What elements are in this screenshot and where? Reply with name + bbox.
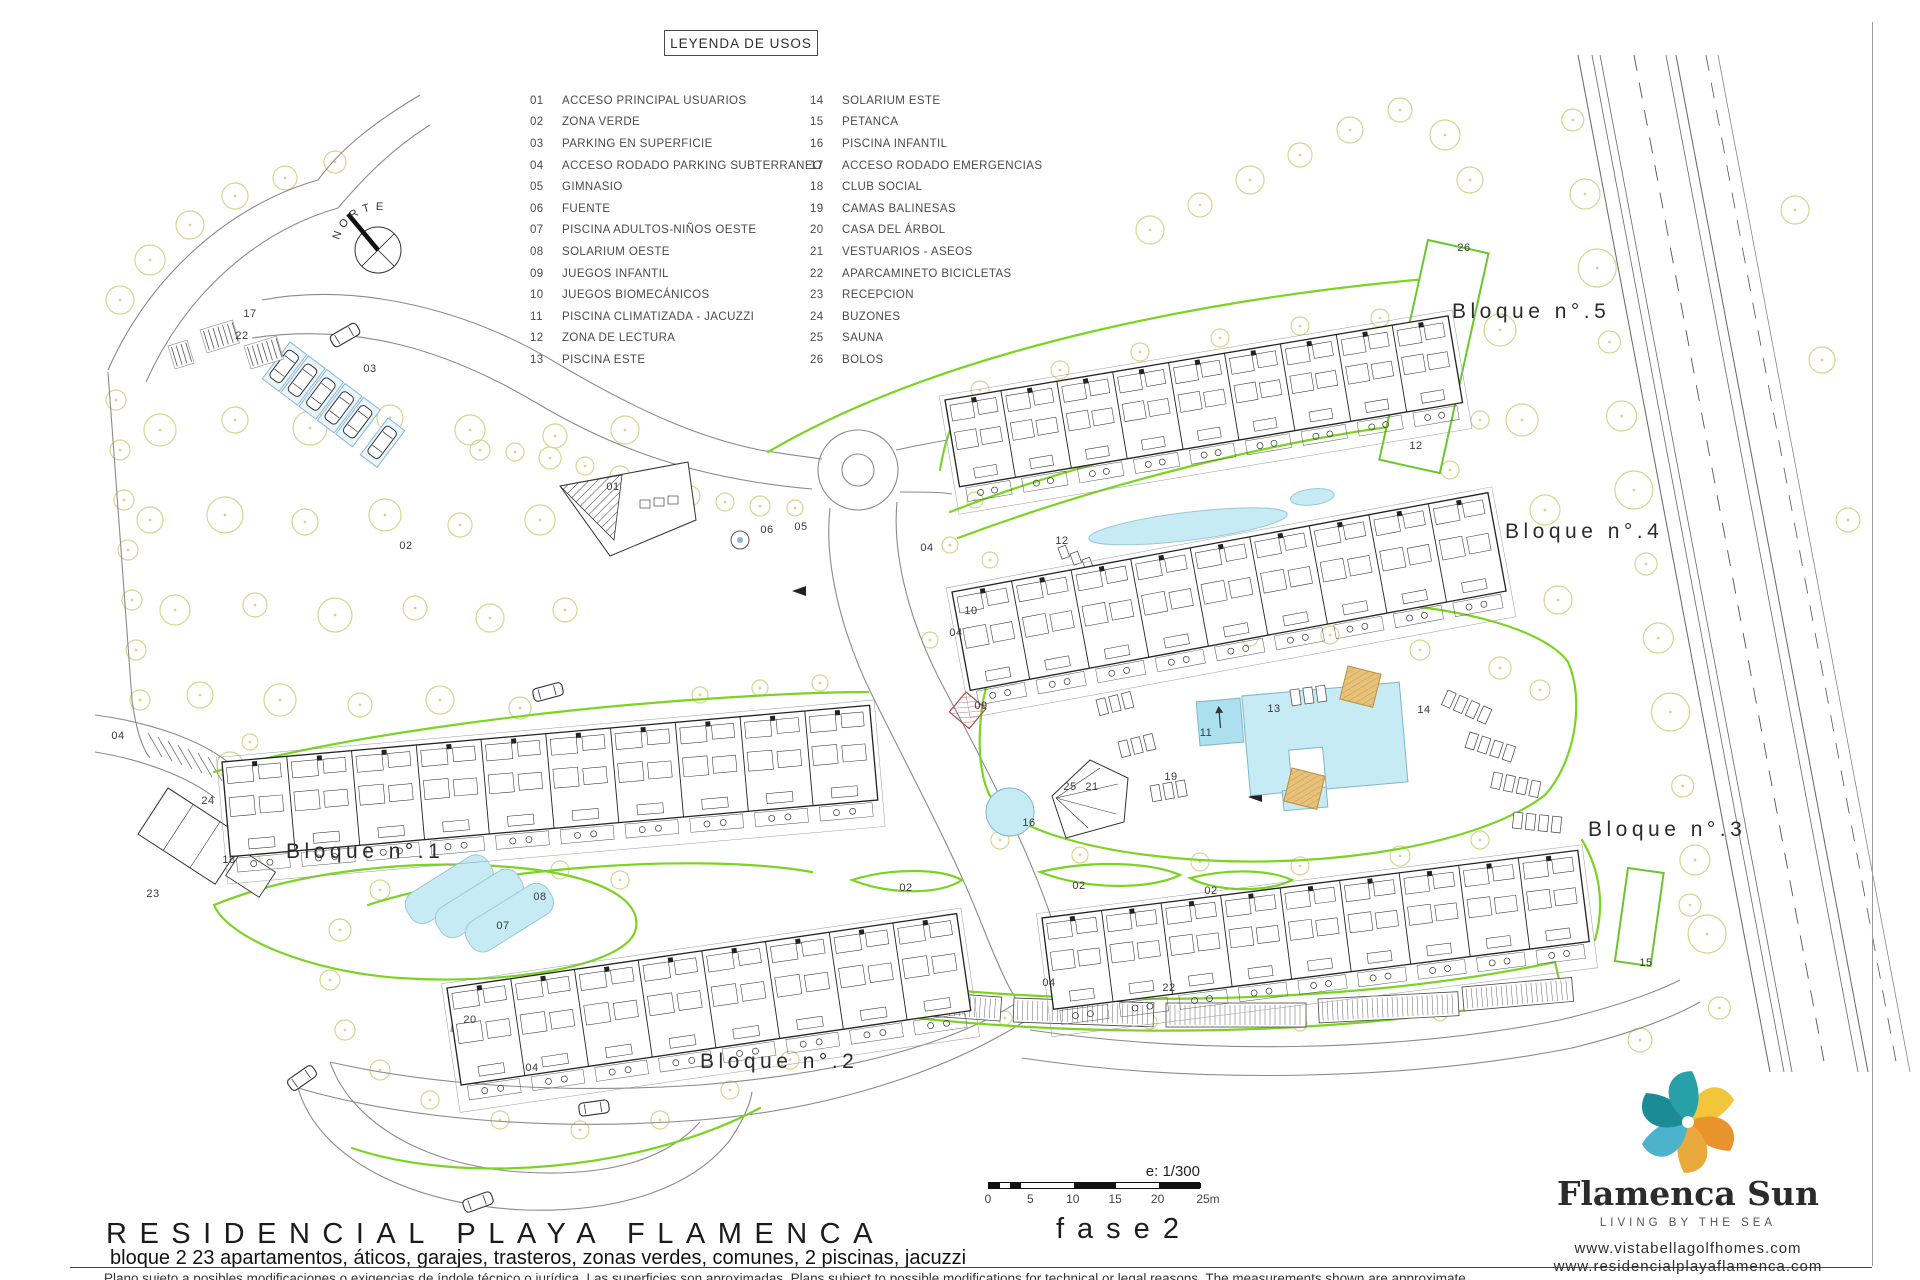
legend-item-number: 03 [530, 138, 562, 150]
scale-bar [988, 1182, 1200, 1189]
legend-item-13: 13PISCINA ESTE [530, 349, 822, 371]
legend-item-17: 17ACCESO RODADO EMERGENCIAS [810, 155, 1042, 177]
plan-marker-04: 04 [525, 1062, 538, 1074]
legend-item-number: 01 [530, 95, 562, 107]
legend-item-11: 11PISCINA CLIMATIZADA - JACUZZI [530, 306, 822, 328]
legend-column-left: 01ACCESO PRINCIPAL USUARIOS02ZONA VERDE0… [530, 90, 822, 371]
scale-tick: 5 [1027, 1192, 1034, 1206]
plan-marker-08: 08 [533, 891, 546, 903]
legend-item-21: 21VESTUARIOS - ASEOS [810, 241, 1042, 263]
text-overlay: LEYENDA DE USOS 01ACCESO PRINCIPAL USUAR… [0, 0, 1920, 1280]
plan-marker-11: 11 [1200, 727, 1212, 739]
legend-item-label: ACCESO RODADO PARKING SUBTERRANEO [562, 160, 822, 172]
plan-marker-13: 13 [1267, 703, 1280, 715]
legend-item-number: 09 [530, 268, 562, 280]
legend-item-14: 14SOLARIUM ESTE [810, 90, 1042, 112]
legend-item-number: 23 [810, 289, 842, 301]
legend-item-label: ZONA VERDE [562, 116, 640, 128]
legend-item-label: GIMNASIO [562, 181, 623, 193]
legend-item-number: 19 [810, 203, 842, 215]
legend-item-label: BUZONES [842, 311, 900, 323]
bloque-1-label: Bloque n°.1 [286, 840, 444, 864]
legend-item-label: ACCESO RODADO EMERGENCIAS [842, 160, 1042, 172]
legend-item-07: 07PISCINA ADULTOS-NIÑOS OESTE [530, 220, 822, 242]
plan-marker-03: 03 [363, 363, 376, 375]
legend-item-number: 20 [810, 224, 842, 236]
plan-marker-26: 26 [1457, 242, 1470, 254]
scale-tick: 0 [985, 1192, 992, 1206]
legend-item-label: PISCINA ESTE [562, 354, 645, 366]
legend-item-05: 05GIMNASIO [530, 176, 822, 198]
legend-item-label: FUENTE [562, 203, 610, 215]
disclaimer-text: Plano sujeto a posibles modificaciones o… [104, 1271, 1470, 1280]
plan-marker-04: 04 [949, 627, 962, 639]
legend-item-number: 06 [530, 203, 562, 215]
legend-item-number: 24 [810, 311, 842, 323]
legend-item-09: 09JUEGOS INFANTIL [530, 263, 822, 285]
legend-item-number: 07 [530, 224, 562, 236]
legend-item-label: RECEPCION [842, 289, 914, 301]
legend-item-number: 05 [530, 181, 562, 193]
legend-title: LEYENDA DE USOS [664, 30, 818, 56]
plan-marker-22: 22 [235, 330, 248, 342]
legend-column-right: 14SOLARIUM ESTE15PETANCA16PISCINA INFANT… [810, 90, 1042, 371]
legend-item-02: 02ZONA VERDE [530, 112, 822, 134]
legend-item-number: 10 [530, 289, 562, 301]
legend-item-number: 16 [810, 138, 842, 150]
plan-marker-25: 25 [1063, 781, 1076, 793]
plan-marker-09: 09 [974, 700, 987, 712]
scale-bar-segment [989, 1183, 1000, 1188]
bloque-2-label: Bloque n°.2 [700, 1050, 858, 1074]
scale-tick: 20 [1151, 1192, 1164, 1206]
plan-marker-12: 12 [1409, 440, 1422, 452]
legend-item-06: 06FUENTE [530, 198, 822, 220]
plan-marker-23: 23 [146, 888, 159, 900]
brand-url-1: www.vistabellagolfhomes.com [1520, 1240, 1856, 1257]
scale-ratio: e: 1/300 [1060, 1163, 1200, 1180]
legend-item-label: BOLOS [842, 354, 884, 366]
plan-marker-17: 17 [243, 308, 256, 320]
plan-marker-07: 07 [496, 920, 509, 932]
plan-marker-10: 10 [964, 605, 977, 617]
bloque-5-label: Bloque n°.5 [1452, 300, 1610, 324]
legend-item-number: 11 [530, 311, 562, 323]
legend-item-number: 02 [530, 116, 562, 128]
bloque-4-label: Bloque n°.4 [1505, 520, 1663, 544]
plan-marker-14: 14 [1417, 704, 1430, 716]
plan-marker-16: 16 [1022, 817, 1035, 829]
plan-marker-02: 02 [899, 882, 912, 894]
brand-url-2: www.residencialplayaflamenca.com [1520, 1258, 1856, 1275]
plan-marker-20: 20 [463, 1014, 476, 1026]
plan-marker-06: 06 [760, 524, 773, 536]
legend-item-label: PISCINA INFANTIL [842, 138, 947, 150]
legend-item-20: 20CASA DEL ÁRBOL [810, 220, 1042, 242]
legend-item-label: CASA DEL ÁRBOL [842, 224, 946, 236]
legend-item-number: 21 [810, 246, 842, 258]
plan-marker-15: 15 [1639, 957, 1652, 969]
legend-item-24: 24BUZONES [810, 306, 1042, 328]
legend-item-03: 03PARKING EN SUPERFICIE [530, 133, 822, 155]
legend-item-15: 15PETANCA [810, 112, 1042, 134]
legend-item-label: APARCAMINETO BICICLETAS [842, 268, 1012, 280]
legend-item-label: VESTUARIOS - ASEOS [842, 246, 973, 258]
phase-label: fase2 [1056, 1213, 1192, 1246]
plan-marker-02: 02 [1204, 885, 1217, 897]
legend-item-number: 18 [810, 181, 842, 193]
legend-item-number: 22 [810, 268, 842, 280]
plan-marker-19: 19 [1164, 771, 1177, 783]
legend-item-label: ACCESO PRINCIPAL USUARIOS [562, 95, 746, 107]
legend-item-number: 15 [810, 116, 842, 128]
plan-marker-22: 22 [1162, 982, 1175, 994]
plan-marker-04: 04 [1042, 977, 1055, 989]
legend-item-01: 01ACCESO PRINCIPAL USUARIOS [530, 90, 822, 112]
plan-marker-01: 01 [606, 481, 619, 493]
legend-item-number: 26 [810, 354, 842, 366]
plan-marker-05: 05 [794, 521, 807, 533]
plan-marker-04: 04 [111, 730, 124, 742]
legend-item-label: PETANCA [842, 116, 898, 128]
bloque-3-label: Bloque n°.3 [1588, 818, 1746, 842]
legend-item-number: 04 [530, 160, 562, 172]
scale-tick: 15 [1109, 1192, 1122, 1206]
plan-marker-02: 02 [1072, 880, 1085, 892]
scale-tick: 25m [1196, 1192, 1219, 1206]
plan-marker-12: 12 [1055, 535, 1068, 547]
brand-tagline: LIVING BY THE SEA [1520, 1217, 1856, 1229]
plan-marker-18: 18 [222, 854, 235, 866]
legend-item-number: 17 [810, 160, 842, 172]
legend-item-12: 12ZONA DE LECTURA [530, 328, 822, 350]
legend-item-label: JUEGOS INFANTIL [562, 268, 669, 280]
scale-tick: 10 [1066, 1192, 1079, 1206]
legend-item-16: 16PISCINA INFANTIL [810, 133, 1042, 155]
legend-item-label: CAMAS BALINESAS [842, 203, 956, 215]
legend-item-label: PARKING EN SUPERFICIE [562, 138, 713, 150]
legend-item-label: CLUB SOCIAL [842, 181, 922, 193]
plan-marker-24: 24 [201, 795, 214, 807]
legend-item-label: ZONA DE LECTURA [562, 332, 675, 344]
site-plan-page: NORTE LEYENDA DE USOS 01ACCESO PRINCIPAL… [0, 0, 1920, 1280]
scale-bar-segment [1074, 1183, 1116, 1188]
legend-item-23: 23RECEPCION [810, 284, 1042, 306]
legend-item-18: 18CLUB SOCIAL [810, 176, 1042, 198]
scale-bar-segment [1159, 1183, 1201, 1188]
legend-item-25: 25SAUNA [810, 328, 1042, 350]
legend-item-04: 04ACCESO RODADO PARKING SUBTERRANEO [530, 155, 822, 177]
scale-bar-segment [1010, 1183, 1021, 1188]
legend-item-10: 10JUEGOS BIOMECÁNICOS [530, 284, 822, 306]
legend-item-number: 25 [810, 332, 842, 344]
legend-item-number: 08 [530, 246, 562, 258]
plan-marker-04: 04 [920, 542, 933, 554]
legend-item-22: 22APARCAMINETO BICICLETAS [810, 263, 1042, 285]
legend-item-08: 08SOLARIUM OESTE [530, 241, 822, 263]
legend-item-label: SOLARIUM OESTE [562, 246, 670, 258]
plan-marker-21: 21 [1085, 781, 1098, 793]
legend-item-19: 19CAMAS BALINESAS [810, 198, 1042, 220]
brand-name: Flamenca Sun [1520, 1174, 1856, 1213]
page-frame-line [1872, 22, 1873, 1266]
legend-item-label: PISCINA ADULTOS-NIÑOS OESTE [562, 224, 756, 236]
legend-item-label: PISCINA CLIMATIZADA - JACUZZI [562, 311, 754, 323]
legend-item-label: JUEGOS BIOMECÁNICOS [562, 289, 710, 301]
plan-marker-02: 02 [399, 540, 412, 552]
legend-item-label: SOLARIUM ESTE [842, 95, 941, 107]
legend-item-number: 14 [810, 95, 842, 107]
legend-item-26: 26BOLOS [810, 349, 1042, 371]
legend-item-number: 13 [530, 354, 562, 366]
legend-item-number: 12 [530, 332, 562, 344]
legend-item-label: SAUNA [842, 332, 884, 344]
